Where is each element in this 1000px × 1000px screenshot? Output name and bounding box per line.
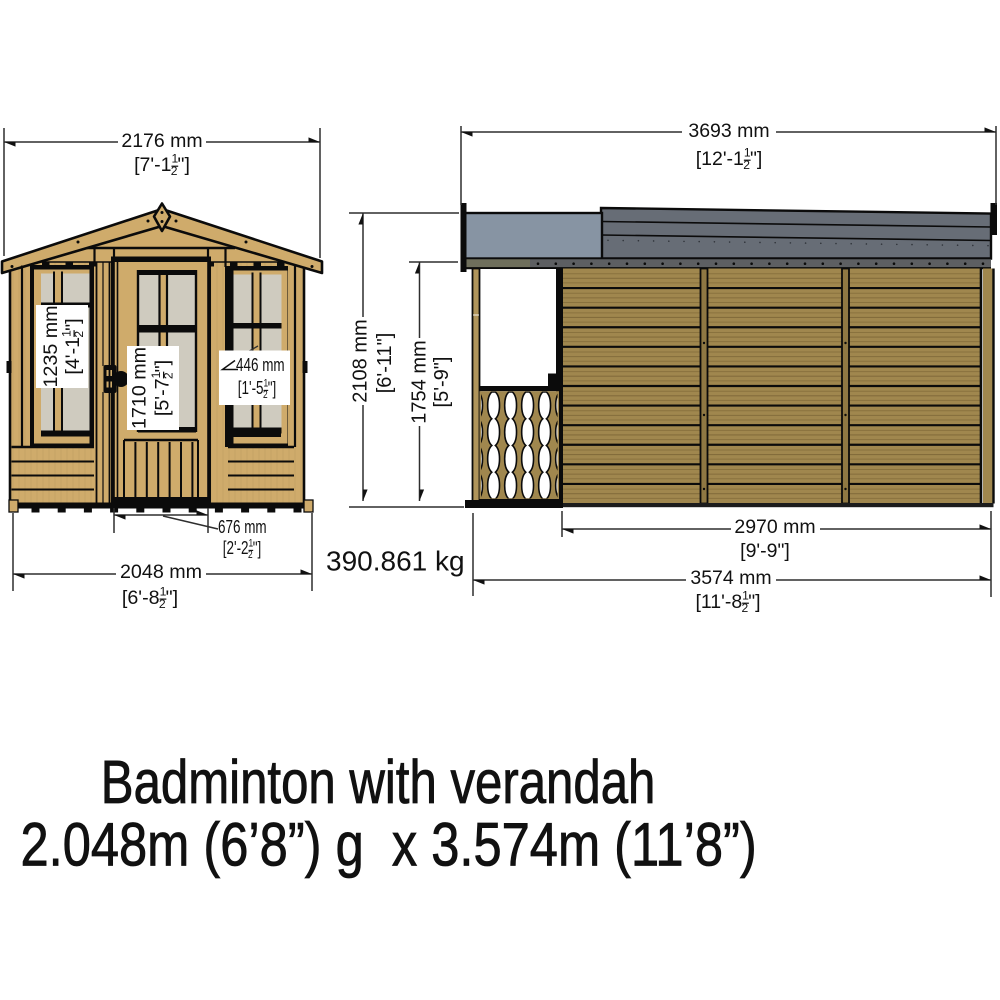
svg-text:3693 mm: 3693 mm (688, 120, 769, 142)
svg-text:[11'-812"]: [11'-812"] (695, 589, 760, 615)
svg-text:[5'-9"]: [5'-9"] (431, 357, 453, 408)
svg-text:2970 mm: 2970 mm (734, 516, 815, 538)
svg-text:2.048m (6’8”) g x 3.574m (11’: 2.048m (6’8”) g x 3.574m (11’8”) (21, 810, 757, 879)
svg-text:1710 mm: 1710 mm (129, 347, 151, 429)
svg-text:[2'-212"]: [2'-212"] (223, 537, 261, 561)
svg-text:446 mm: 446 mm (236, 356, 285, 375)
svg-text:[6'-11"]: [6'-11"] (374, 333, 396, 394)
svg-text:2176 mm: 2176 mm (121, 130, 202, 152)
svg-text:1235 mm: 1235 mm (40, 305, 62, 387)
svg-text:[9'-9"]: [9'-9"] (740, 540, 790, 562)
svg-text:2108 mm: 2108 mm (350, 319, 372, 402)
svg-text:2048 mm: 2048 mm (120, 561, 202, 583)
svg-text:[5'-712"]: [5'-712"] (149, 360, 175, 416)
svg-text:[7'-112"]: [7'-112"] (134, 152, 190, 178)
svg-text:1754 mm: 1754 mm (409, 340, 431, 423)
svg-text:Badminton with verandah: Badminton with verandah (101, 748, 656, 816)
svg-text:[4'-112"]: [4'-112"] (60, 318, 86, 374)
svg-text:390.861 kg: 390.861 kg (326, 546, 465, 577)
svg-text:[1'-512"]: [1'-512"] (238, 377, 276, 401)
svg-text:676 mm: 676 mm (218, 518, 267, 537)
svg-text:3574 mm: 3574 mm (690, 567, 771, 589)
svg-text:[12'-112"]: [12'-112"] (696, 146, 763, 172)
svg-text:[6'-812"]: [6'-812"] (122, 585, 178, 611)
